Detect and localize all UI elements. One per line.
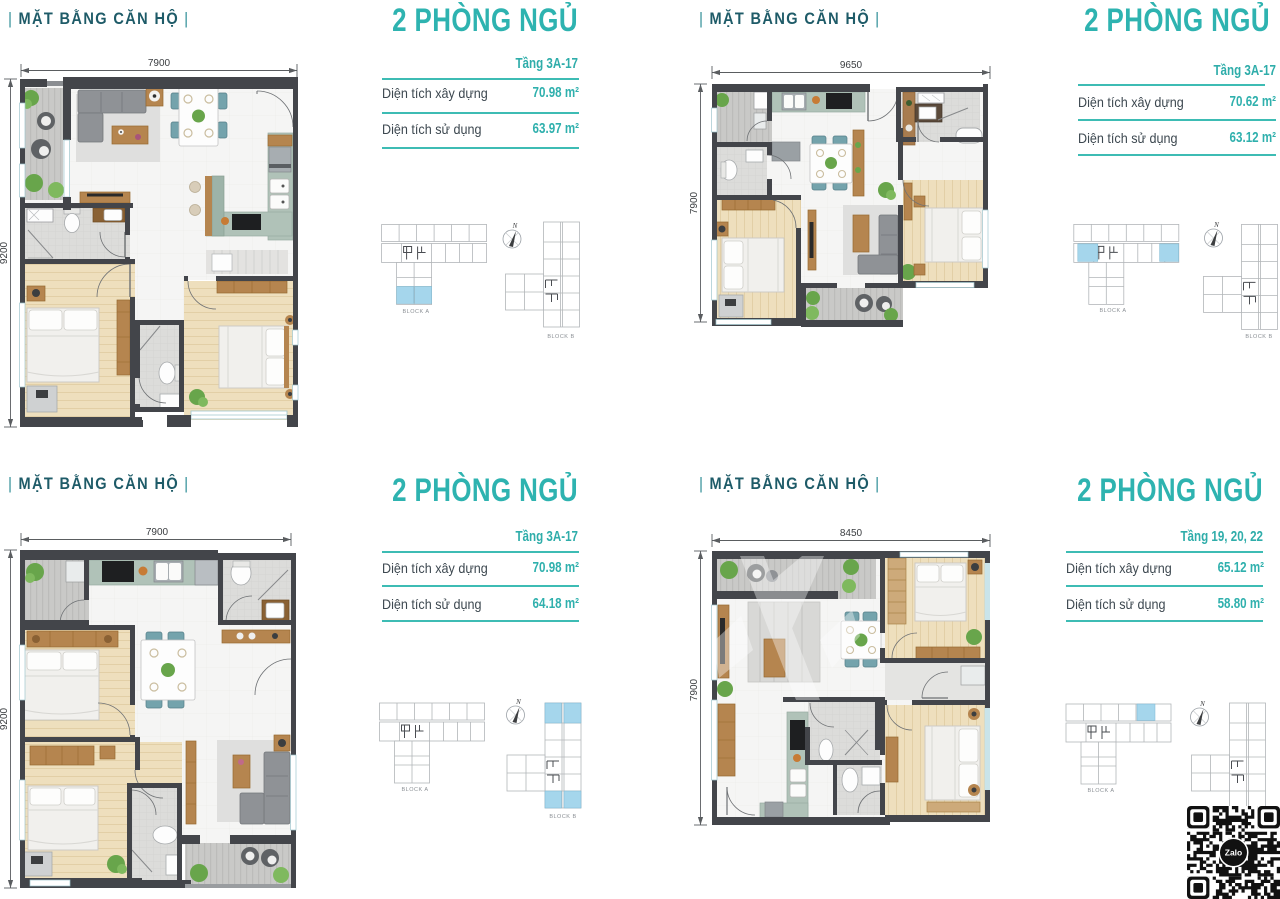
svg-text:BLOCK A: BLOCK A	[1087, 788, 1114, 794]
svg-text:BLOCK B: BLOCK B	[1245, 334, 1272, 340]
svg-text:BLOCK A: BLOCK A	[401, 787, 428, 793]
svg-text:BLOCK B: BLOCK B	[549, 814, 576, 820]
svg-text:BLOCK B: BLOCK B	[547, 334, 574, 340]
svg-text:BLOCK A: BLOCK A	[402, 309, 429, 315]
svg-text:Zalo: Zalo	[1225, 848, 1242, 858]
svg-text:BLOCK A: BLOCK A	[1099, 308, 1126, 314]
